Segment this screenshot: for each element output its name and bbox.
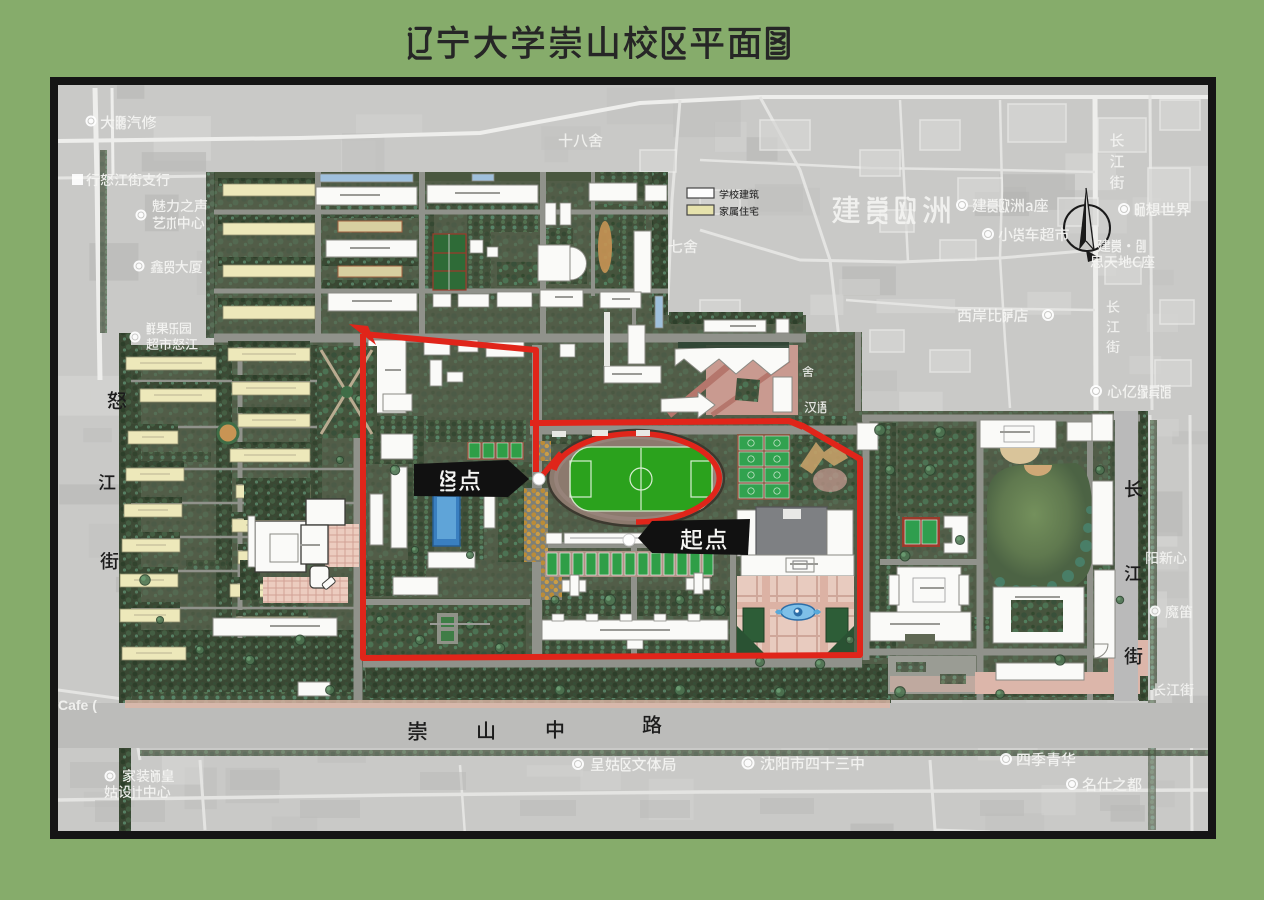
svg-text:Cafe (: Cafe ( — [58, 697, 97, 713]
